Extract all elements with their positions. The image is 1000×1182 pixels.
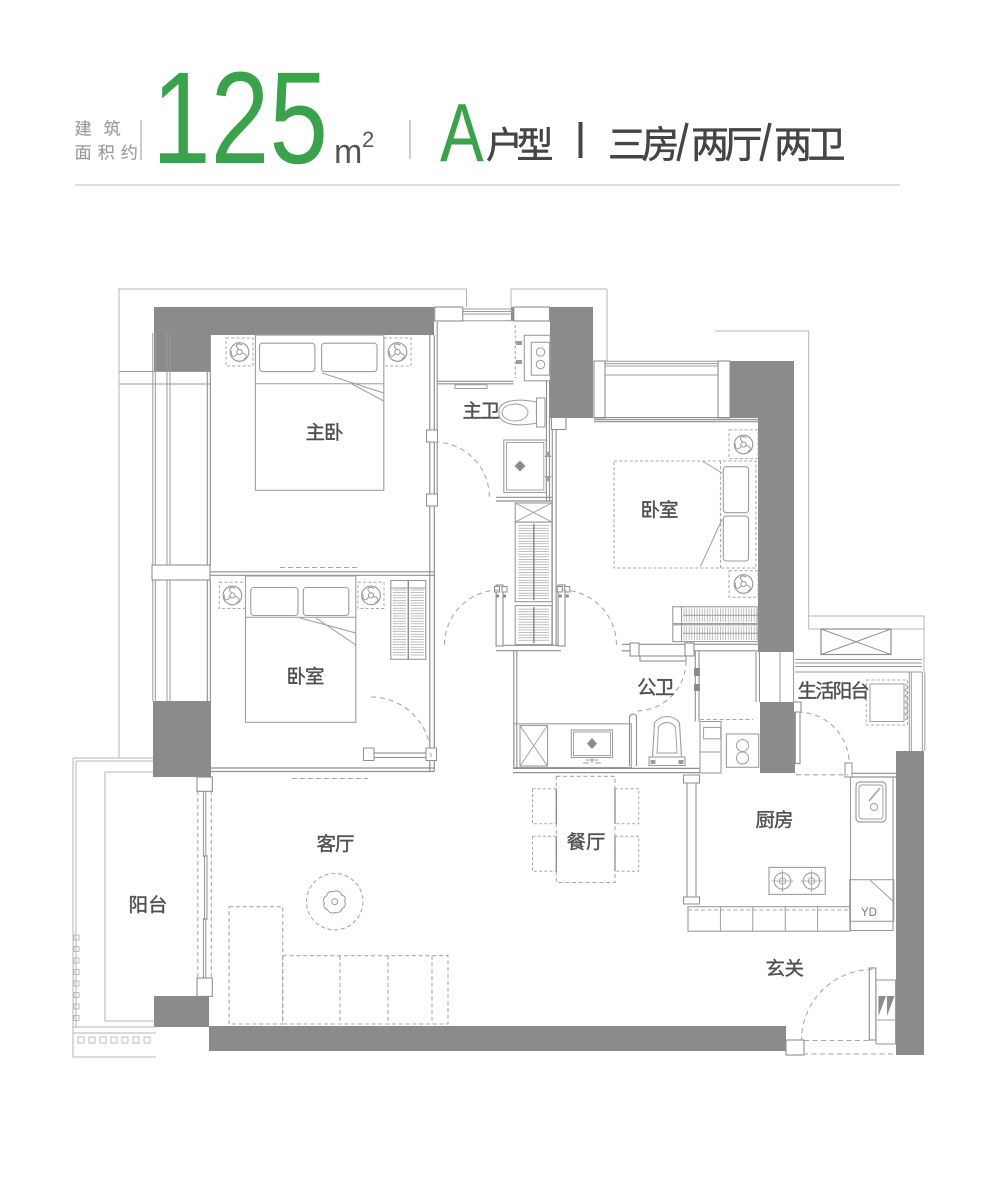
svg-text:YD: YD: [861, 907, 877, 919]
svg-text:2: 2: [362, 127, 374, 152]
svg-text:A: A: [440, 86, 484, 179]
svg-text:m: m: [334, 133, 362, 171]
svg-text:125: 125: [152, 44, 328, 191]
